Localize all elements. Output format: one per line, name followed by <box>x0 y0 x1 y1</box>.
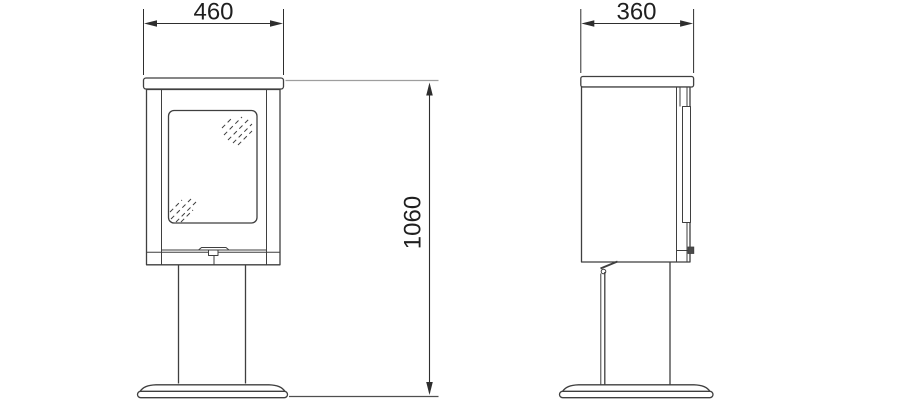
side-body-panel <box>582 87 691 262</box>
front-base-rim <box>138 391 288 397</box>
dimension-overall-height: 1060 <box>286 81 439 397</box>
arrow-up-icon <box>426 83 433 96</box>
side-top-plate <box>581 77 694 88</box>
arrow-down-icon <box>426 382 433 395</box>
overall-height-value: 1060 <box>400 196 427 249</box>
arrow-left-icon <box>144 20 157 27</box>
front-width-value: 460 <box>193 0 233 26</box>
stove-dimension-drawing: 460 360 1060 <box>0 0 900 400</box>
side-base-rim <box>560 391 714 397</box>
side-view <box>560 77 714 398</box>
arrow-right-icon <box>680 20 693 27</box>
front-glass-window <box>169 111 258 224</box>
side-glass-frame <box>683 107 691 223</box>
dimension-side-depth: 360 <box>581 0 694 73</box>
arrow-left-icon <box>581 20 594 27</box>
front-base-dome <box>140 385 285 392</box>
side-depth-value: 360 <box>616 0 656 26</box>
drawing-canvas: 460 360 1060 <box>0 0 900 400</box>
dimension-front-width: 460 <box>144 0 284 75</box>
front-handle-knob <box>209 250 219 256</box>
arrow-right-icon <box>270 20 283 27</box>
side-pedestal-column <box>605 262 670 385</box>
side-base-dome <box>563 385 711 392</box>
side-latch-knob <box>688 247 694 254</box>
front-view <box>138 78 288 398</box>
front-pedestal-column <box>179 265 246 384</box>
front-top-plate <box>144 78 284 89</box>
